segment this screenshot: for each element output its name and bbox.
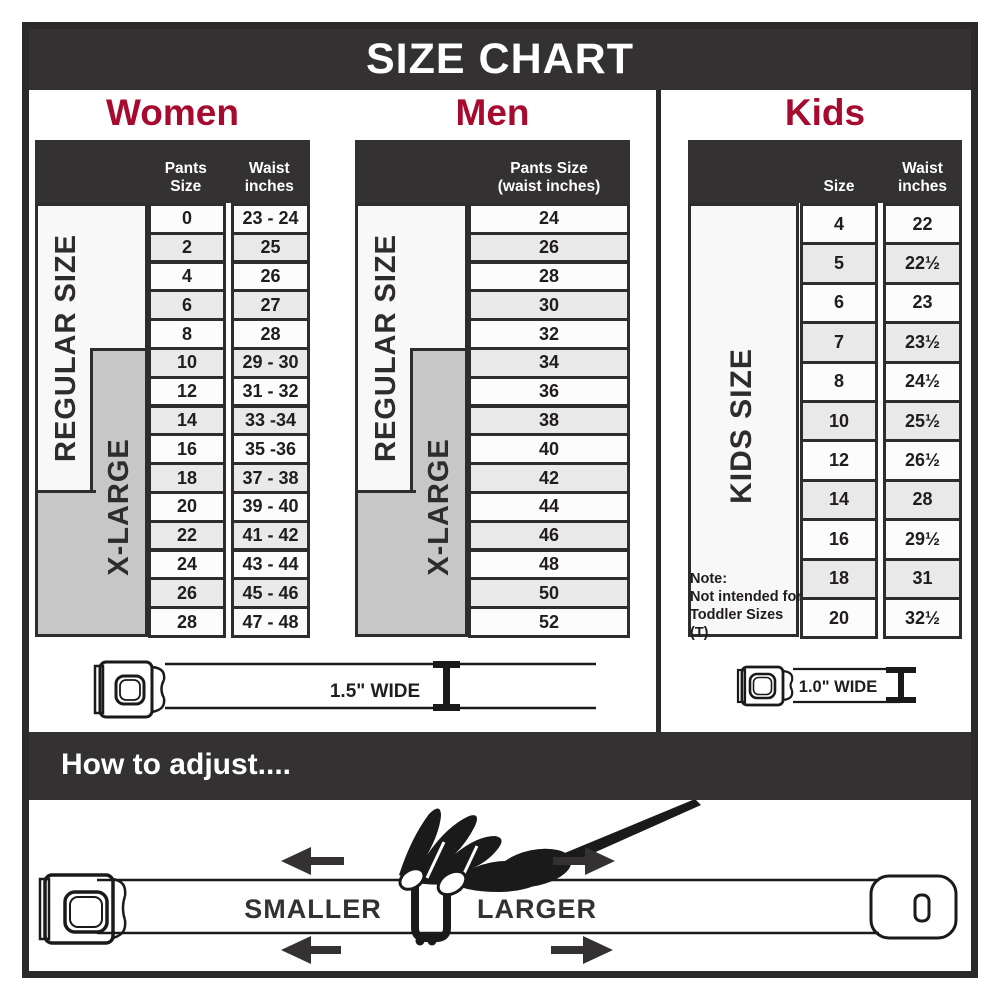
width-measure-icon [433,661,460,711]
waist-cell: 37 - 38 [231,462,310,494]
kids-table-row: 7 23½ [800,321,962,363]
pants-size-cell: 6 [148,289,226,321]
pants-size-cell: 14 [148,405,226,437]
pants-size-cell: 50 [468,577,630,609]
women-table-row: 16 35 -36 [148,433,310,465]
pants-size-cell: 34 [468,347,630,379]
women-table-row: 4 26 [148,261,310,293]
waist-cell: 22½ [883,242,962,284]
women-table-row: 22 41 - 42 [148,520,310,552]
waist-cell: 39 - 40 [231,491,310,523]
hand-illustration [396,800,701,899]
women-table-row: 14 33 -34 [148,405,310,437]
adult-belt-illustration: 1.5" WIDE [40,650,655,725]
women-col-waist: Waist inches [229,160,310,196]
pants-size-cell: 42 [468,462,630,494]
waist-cell: 35 -36 [231,433,310,465]
how-to-adjust-area: SMALLER LARGER [29,800,971,971]
pants-size-cell: 0 [148,203,226,235]
left-arrow-icon [281,936,341,964]
waist-cell: 43 - 44 [231,549,310,581]
men-table-row: 40 [468,433,630,465]
waist-cell: 28 [883,479,962,521]
pants-size-cell: 46 [468,520,630,552]
size-cell: 5 [800,242,878,284]
waist-cell: 25½ [883,400,962,442]
men-table-row: 48 [468,549,630,581]
men-table-row: 38 [468,405,630,437]
waist-cell: 26 [231,261,310,293]
kids-table-row: 8 24½ [800,361,962,403]
pants-size-cell: 48 [468,549,630,581]
buckle-hole-inner [754,678,772,695]
pants-size-cell: 32 [468,318,630,350]
size-cell: 20 [800,597,878,639]
women-table-row: 6 27 [148,289,310,321]
pants-size-cell: 2 [148,232,226,264]
size-cell: 12 [800,439,878,481]
waist-cell: 25 [231,232,310,264]
men-xlarge-box-extension [355,490,416,637]
larger-label: LARGER [477,894,597,924]
tables-area: Women Pants Size Waist inches REGULAR SI… [29,90,971,732]
men-table-row: 32 [468,318,630,350]
kids-size-label: KIDS SIZE [727,306,759,546]
women-table-row: 2 25 [148,232,310,264]
men-section-title: Men [355,92,630,138]
women-table-row: 0 23 - 24 [148,203,310,235]
waist-cell: 45 - 46 [231,577,310,609]
women-regular-size-label: REGULAR SIZE [51,208,81,488]
section-divider [656,90,661,732]
women-table-row: 24 43 - 44 [148,549,310,581]
kids-table-body: 4 22 5 22½ 6 23 7 23½ 8 24½ [800,203,962,639]
men-table-header: Pants Size (waist inches) [355,140,630,203]
men-table-row: 42 [468,462,630,494]
kids-table-row: 14 28 [800,479,962,521]
waist-cell: 31 - 32 [231,376,310,408]
waist-cell: 27 [231,289,310,321]
women-col-pants-size: Pants Size [148,160,224,196]
men-table-row: 36 [468,376,630,408]
buckle-strap-connector [152,667,164,712]
pants-size-cell: 20 [148,491,226,523]
women-xlarge-box-extension [35,490,96,637]
kids-table-header: Size Waist inches [688,140,962,203]
waist-cell: 26½ [883,439,962,481]
kids-table-row: 20 32½ [800,597,962,639]
size-cell: 18 [800,558,878,600]
pants-size-cell: 18 [148,462,226,494]
waist-cell: 28 [231,318,310,350]
pants-size-cell: 26 [148,577,226,609]
men-table-row: 52 [468,606,630,638]
smaller-label: SMALLER [244,894,382,924]
pants-size-cell: 28 [148,606,226,638]
right-arrow-icon [551,936,613,964]
size-cell: 8 [800,361,878,403]
men-table-row: 50 [468,577,630,609]
kids-table-row: 10 25½ [800,400,962,442]
kids-belt-illustration: 1.0" WIDE [690,655,970,715]
kids-table-row: 12 26½ [800,439,962,481]
men-table-row: 46 [468,520,630,552]
waist-cell: 33 -34 [231,405,310,437]
women-table-header: Pants Size Waist inches [35,140,310,203]
size-cell: 6 [800,282,878,324]
pants-size-cell: 40 [468,433,630,465]
waist-cell: 23 [883,282,962,324]
men-table-row: 30 [468,289,630,321]
men-table-row: 34 [468,347,630,379]
adult-belt-width-label: 1.5" WIDE [330,681,420,702]
waist-cell: 29 - 30 [231,347,310,379]
kids-section-title: Kids [688,92,962,138]
women-section-title: Women [35,92,310,138]
waist-cell: 31 [883,558,962,600]
kids-col-waist: Waist inches [883,160,962,196]
pants-size-cell: 52 [468,606,630,638]
women-table-row: 8 28 [148,318,310,350]
pants-size-cell: 38 [468,405,630,437]
kids-table-row: 16 29½ [800,518,962,560]
women-table-row: 18 37 - 38 [148,462,310,494]
pants-size-cell: 24 [148,549,226,581]
pants-size-cell: 24 [468,203,630,235]
men-xlarge-label: X-LARGE [424,377,454,637]
buckle-strap-connector [113,879,125,938]
women-table-row: 12 31 - 32 [148,376,310,408]
size-cell: 14 [800,479,878,521]
size-chart-infographic: SIZE CHART Women Pants Size Waist inches… [0,0,1000,1000]
men-table-row: 44 [468,491,630,523]
slider-loop [416,937,425,946]
pants-size-cell: 12 [148,376,226,408]
buckle-hole-inner [70,897,102,927]
men-table-row: 26 [468,232,630,264]
pants-size-cell: 4 [148,261,226,293]
pants-size-cell: 22 [148,520,226,552]
women-table-row: 28 47 - 48 [148,606,310,638]
kids-table-row: 5 22½ [800,242,962,284]
kids-col-size: Size [800,178,878,196]
pants-size-cell: 44 [468,491,630,523]
buckle-hole-inner [120,680,140,700]
pants-size-cell: 16 [148,433,226,465]
pants-size-cell: 10 [148,347,226,379]
men-regular-size-label: REGULAR SIZE [371,208,401,488]
kids-table-row: 6 23 [800,282,962,324]
men-col-pants-size: Pants Size (waist inches) [468,160,630,196]
pants-size-cell: 30 [468,289,630,321]
width-measure-icon [886,667,916,703]
slider-loop [428,937,437,946]
kids-belt-width-label: 1.0" WIDE [799,678,877,696]
waist-cell: 32½ [883,597,962,639]
waist-cell: 23 - 24 [231,203,310,235]
waist-cell: 24½ [883,361,962,403]
pants-size-cell: 8 [148,318,226,350]
kids-table-row: 18 31 [800,558,962,600]
waist-cell: 29½ [883,518,962,560]
sheet-frame: SIZE CHART Women Pants Size Waist inches… [22,22,978,978]
women-table-body: 0 23 - 24 2 25 4 26 6 27 8 28 [148,203,310,638]
waist-cell: 23½ [883,321,962,363]
belt-tip-slot [915,895,929,921]
men-table-row: 24 [468,203,630,235]
waist-cell: 47 - 48 [231,606,310,638]
women-table-row: 10 29 - 30 [148,347,310,379]
adjust-belt-illustration: SMALLER LARGER [29,800,971,971]
left-arrow-icon [281,847,344,875]
pants-size-cell: 28 [468,261,630,293]
size-cell: 4 [800,203,878,245]
waist-cell: 22 [883,203,962,245]
how-to-adjust-title: How to adjust.... [29,732,971,800]
women-table-row: 20 39 - 40 [148,491,310,523]
size-cell: 7 [800,321,878,363]
pants-size-cell: 26 [468,232,630,264]
men-table-body: 24 26 28 30 32 34 36 38 [468,203,630,638]
men-table-row: 28 [468,261,630,293]
size-cell: 16 [800,518,878,560]
pants-size-cell: 36 [468,376,630,408]
women-xlarge-label: X-LARGE [104,377,134,637]
waist-cell: 41 - 42 [231,520,310,552]
women-table-row: 26 45 - 46 [148,577,310,609]
page-title: SIZE CHART [29,29,971,90]
size-cell: 10 [800,400,878,442]
kids-note: Note: Not intended for Toddler Sizes (T) [690,571,802,643]
kids-table-row: 4 22 [800,203,962,245]
